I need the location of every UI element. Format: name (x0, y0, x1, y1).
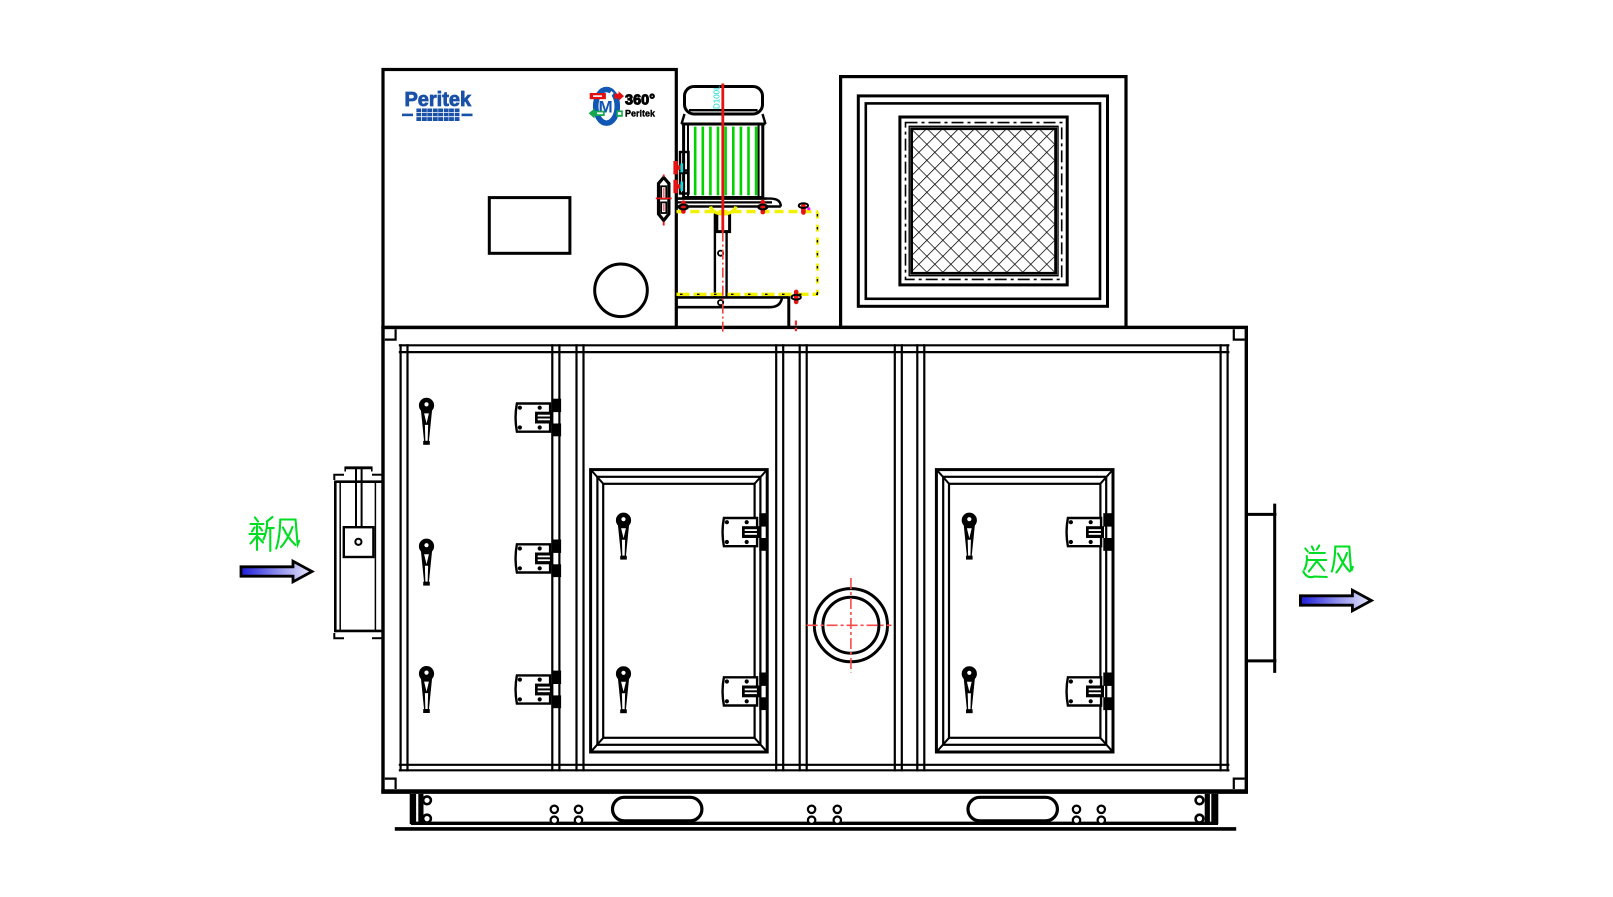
svg-text:Peritek: Peritek (625, 109, 656, 119)
svg-text:360°: 360° (625, 93, 655, 109)
svg-text:D100L: D100L (713, 85, 722, 109)
svg-text:Peritek: Peritek (404, 89, 472, 111)
